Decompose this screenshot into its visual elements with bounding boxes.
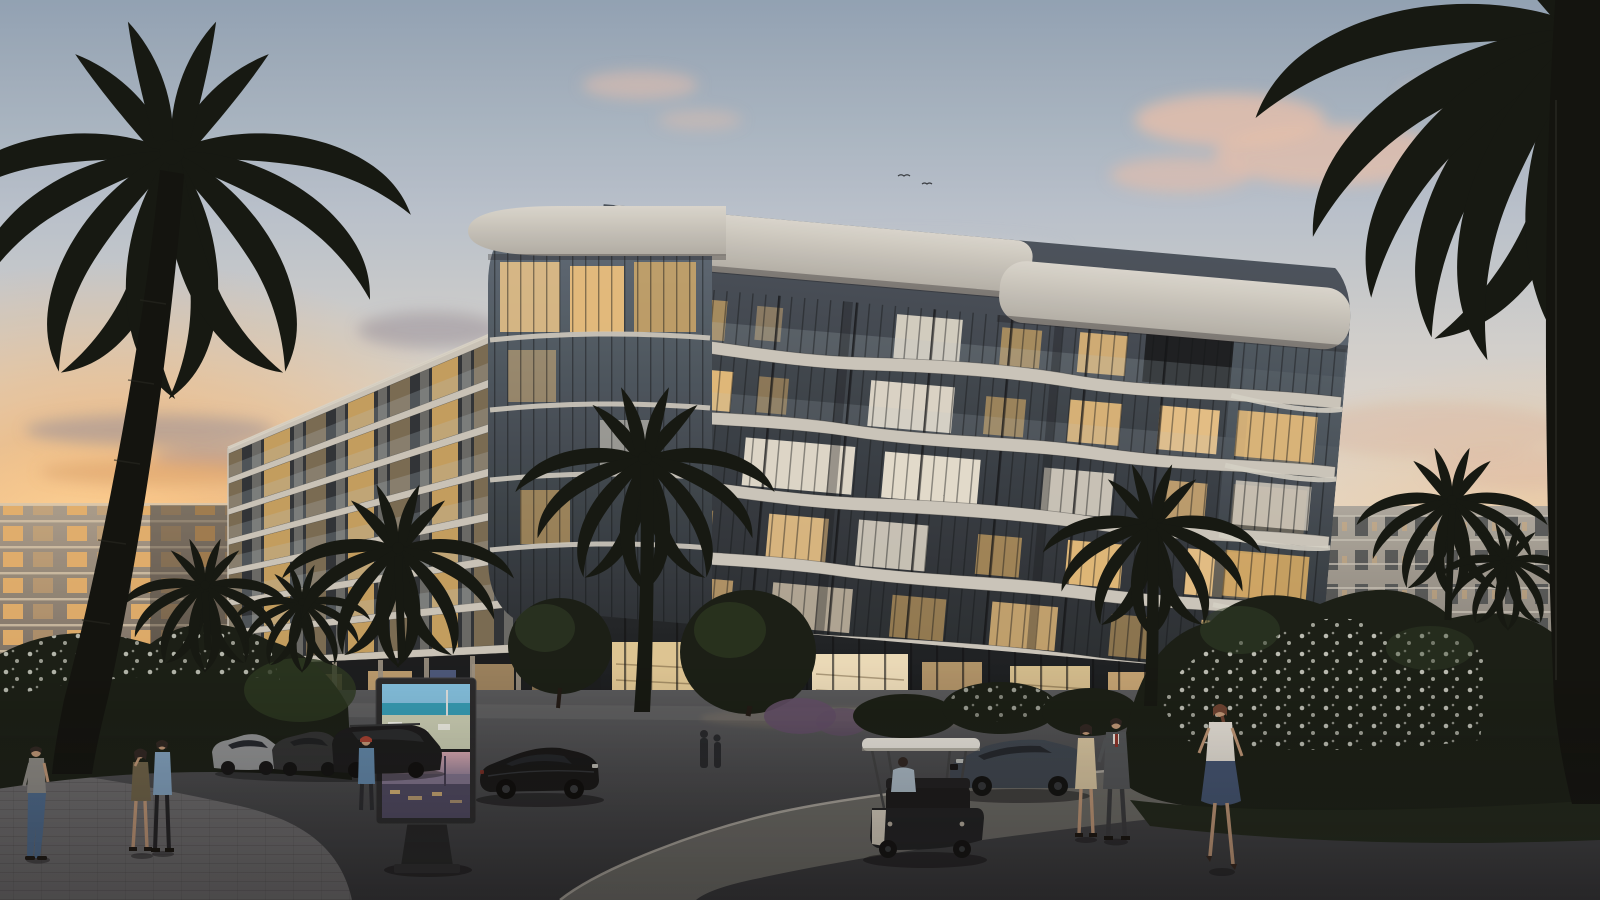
dusk-architectural-rendering [0, 0, 1600, 900]
rendering-canvas [0, 0, 1600, 900]
warm-grade-overlay [0, 0, 1600, 900]
